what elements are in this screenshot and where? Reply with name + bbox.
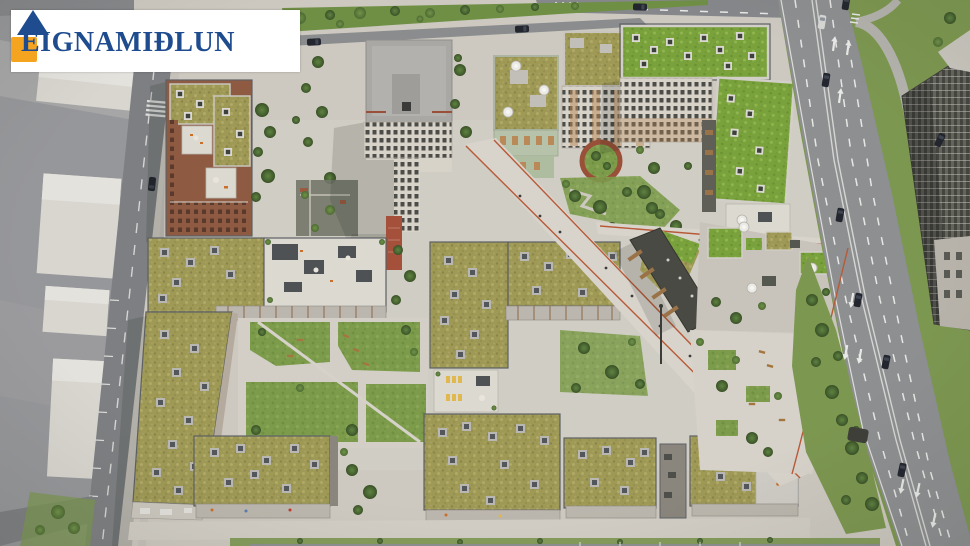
brand-name: EIGNAMIÐLUN	[21, 29, 235, 57]
aerial-render: EIGNAMIÐLUN	[0, 0, 970, 546]
scene-canvas	[0, 0, 970, 546]
vignette	[0, 0, 970, 546]
brand-watermark: EIGNAMIÐLUN	[11, 10, 300, 72]
